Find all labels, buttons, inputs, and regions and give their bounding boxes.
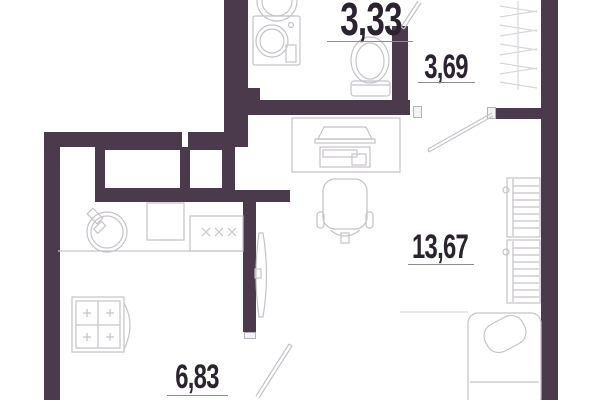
area-label-kitchen: 6,83 [169,358,225,397]
kitchen-sink-icon [87,208,127,252]
balcony-door-swing [256,344,292,398]
radiator-upper-icon [503,178,540,237]
fixtures-layer [0,0,600,400]
area-label-bathroom: 3,33 [335,0,407,46]
washing-machine-icon [253,16,300,65]
fridge-icon [147,203,184,240]
desk-icon [292,118,400,172]
bathroom-sink-icon [257,0,297,21]
area-underline-living-room [408,264,474,265]
stove-burners-icon [190,216,243,251]
area-underline-hallway [418,82,475,83]
radiator-lower-icon [503,240,540,303]
office-chair-icon [317,179,373,243]
area-underline-bathroom [327,41,413,42]
area-underline-kitchen [167,395,228,396]
area-label-living-room: 13,67 [412,228,468,267]
bed-icon [468,311,541,400]
cooktop-icon [72,297,130,352]
tv-icon [255,233,267,317]
floor-plan: 3,33 3,69 13,67 6,83 [0,0,600,400]
hallway-door-swing [428,113,493,152]
wardrobe-hangers-icon [500,1,537,90]
